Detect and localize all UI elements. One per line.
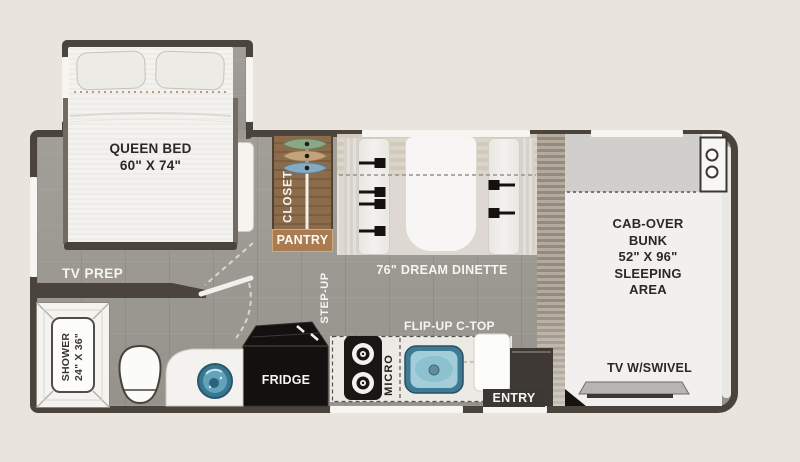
queen-bed-size: 60" X 74" — [78, 158, 223, 173]
latch-circle-icon — [707, 167, 718, 178]
bathroom-wall — [30, 283, 206, 298]
queen-bed-label: QUEEN BED — [78, 141, 223, 156]
cab-over-bunk-label: CAB-OVER BUNK 52" X 96" SLEEPING AREA — [588, 216, 708, 299]
kitchen-sink-icon — [405, 346, 463, 393]
dinette-label: 76" DREAM DINETTE — [352, 263, 532, 277]
latch-circle-icon — [707, 150, 718, 161]
tv-swivel-label: TV W/SWIVEL — [592, 361, 707, 375]
bunk-corner-panel — [701, 138, 727, 192]
fridge-shape — [243, 322, 328, 406]
rv-floorplan: QUEEN BED 60" X 74" TV PREP CLOSET PANTR… — [0, 0, 800, 462]
door-swing — [201, 243, 253, 338]
toilet-icon — [119, 346, 160, 403]
stove-icon — [344, 336, 382, 400]
tv-icon — [579, 382, 689, 398]
flip-up-counter — [474, 334, 510, 391]
micro-label: MICRO — [383, 347, 395, 403]
entry-label: ENTRY — [483, 389, 545, 407]
fridge-label: FRIDGE — [250, 373, 322, 387]
pillow-icon — [76, 51, 224, 90]
pantry-label: PANTRY — [272, 229, 333, 252]
step-up-label: STEP-UP — [319, 261, 333, 335]
bath-counter — [166, 349, 243, 406]
flip-up-label: FLIP-UP C-TOP — [404, 319, 522, 333]
closet-label: CLOSET — [283, 160, 298, 234]
tv-prep-label: TV PREP — [62, 266, 123, 281]
seatbelt-tick — [359, 160, 515, 235]
shower-label: SHOWER 24" X 36" — [60, 320, 86, 394]
